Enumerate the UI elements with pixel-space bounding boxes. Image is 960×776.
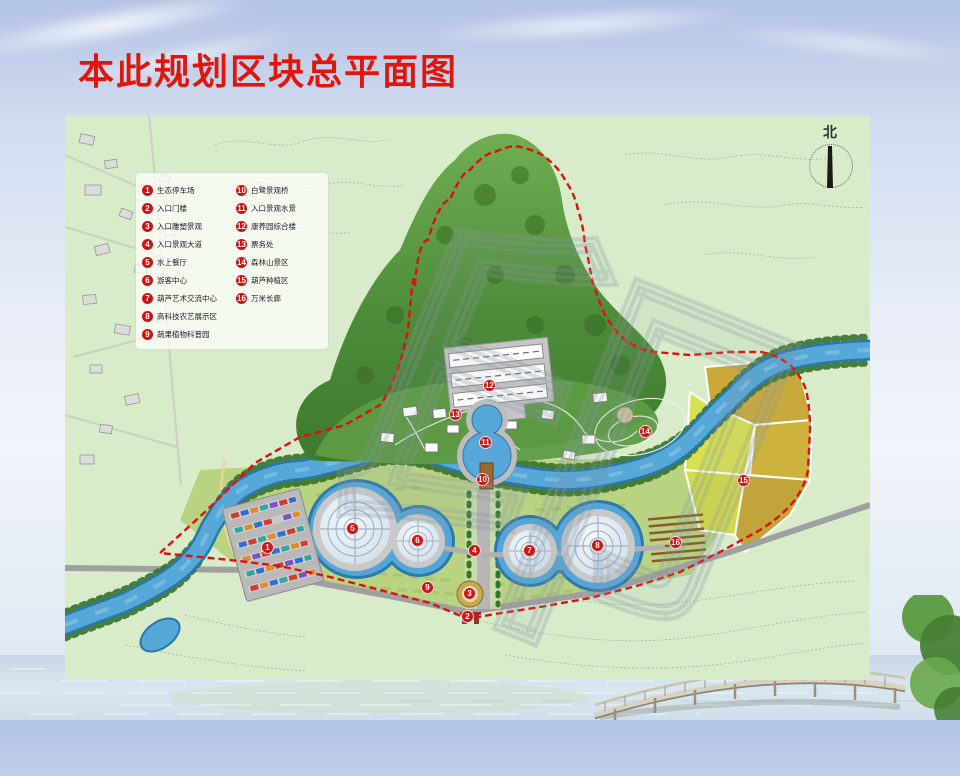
legend-item-9: 9蔬果植物科普园 <box>142 325 234 343</box>
map-marker-5: 5 <box>346 522 359 535</box>
legend-badge: 8 <box>142 311 153 322</box>
map-legend: 1生态停车场2入口门楼3入口雕塑景观4入口景观大道5水上餐厅6游客中心7葫芦艺术… <box>135 172 329 350</box>
legend-label: 入口景观水景 <box>251 203 296 214</box>
legend-item-7: 7葫芦艺术交流中心 <box>142 289 234 307</box>
legend-item-10: 10白鹭景观桥 <box>236 181 328 199</box>
legend-badge: 5 <box>142 257 153 268</box>
legend-label: 葫芦种植区 <box>251 275 289 286</box>
legend-item-12: 12康养园综合楼 <box>236 217 328 235</box>
map-marker-8: 8 <box>591 539 604 552</box>
legend-item-6: 6游客中心 <box>142 271 234 289</box>
cloud-decoration <box>719 16 960 71</box>
legend-label: 蔬果植物科普园 <box>157 329 210 340</box>
north-needle <box>800 134 860 194</box>
legend-badge: 13 <box>236 239 247 250</box>
legend-item-15: 15葫芦种植区 <box>236 271 328 289</box>
legend-badge: 14 <box>236 257 247 268</box>
map-marker-10: 10 <box>476 473 489 486</box>
legend-badge: 10 <box>236 185 247 196</box>
legend-label: 票务处 <box>251 239 274 250</box>
legend-label: 高科技农艺展示区 <box>157 311 217 322</box>
legend-label: 入口景观大道 <box>157 239 202 250</box>
map-marker-4: 4 <box>468 544 481 557</box>
legend-badge: 2 <box>142 203 153 214</box>
legend-badge: 9 <box>142 329 153 340</box>
legend-label: 康养园综合楼 <box>251 221 296 232</box>
map-marker-1: 1 <box>261 541 274 554</box>
page-title: 本此规划区块总平面图 <box>78 52 458 92</box>
legend-item-16: 16万米长廊 <box>236 289 328 307</box>
legend-badge: 6 <box>142 275 153 286</box>
map-marker-6: 6 <box>411 534 424 547</box>
legend-item-3: 3入口雕塑景观 <box>142 217 234 235</box>
legend-badge: 11 <box>236 203 247 214</box>
legend-item-11: 11入口景观水景 <box>236 199 328 217</box>
legend-badge: 16 <box>236 293 247 304</box>
legend-label: 入口雕塑景观 <box>157 221 202 232</box>
legend-label: 生态停车场 <box>157 185 195 196</box>
map-marker-3: 3 <box>463 587 476 600</box>
legend-label: 水上餐厅 <box>157 257 187 268</box>
legend-item-4: 4入口景观大道 <box>142 235 234 253</box>
legend-item-1: 1生态停车场 <box>142 181 234 199</box>
legend-badge: 15 <box>236 275 247 286</box>
legend-label: 游客中心 <box>157 275 187 286</box>
legend-label: 白鹭景观桥 <box>251 185 289 196</box>
map-marker-13: 13 <box>449 408 462 421</box>
legend-label: 入口门楼 <box>157 203 187 214</box>
map-marker-16: 16 <box>669 536 682 549</box>
legend-badge: 7 <box>142 293 153 304</box>
legend-item-14: 14森林山景区 <box>236 253 328 271</box>
legend-badge: 4 <box>142 239 153 250</box>
legend-item-2: 2入口门楼 <box>142 199 234 217</box>
map-marker-14: 14 <box>639 425 652 438</box>
cloud-decoration <box>419 0 740 51</box>
slide-background: 本此规划区块总平面图 <box>0 0 960 720</box>
legend-badge: 1 <box>142 185 153 196</box>
map-marker-9: 9 <box>421 581 434 594</box>
map-marker-15: 15 <box>737 474 750 487</box>
map-marker-2: 2 <box>461 610 474 623</box>
legend-badge: 12 <box>236 221 247 232</box>
legend-items: 1生态停车场2入口门楼3入口雕塑景观4入口景观大道5水上餐厅6游客中心7葫芦艺术… <box>142 181 322 343</box>
map-marker-12: 12 <box>483 379 496 392</box>
legend-label: 万米长廊 <box>251 293 281 304</box>
legend-item-5: 5水上餐厅 <box>142 253 234 271</box>
legend-label: 葫芦艺术交流中心 <box>157 293 217 304</box>
map-marker-7: 7 <box>523 544 536 557</box>
legend-label: 森林山景区 <box>251 257 289 268</box>
shore-foliage <box>880 595 960 720</box>
legend-item-13: 13票务处 <box>236 235 328 253</box>
north-arrow: 北 <box>800 122 860 200</box>
legend-item-8: 8高科技农艺展示区 <box>142 307 234 325</box>
legend-badge: 3 <box>142 221 153 232</box>
map-marker-11: 11 <box>479 436 492 449</box>
